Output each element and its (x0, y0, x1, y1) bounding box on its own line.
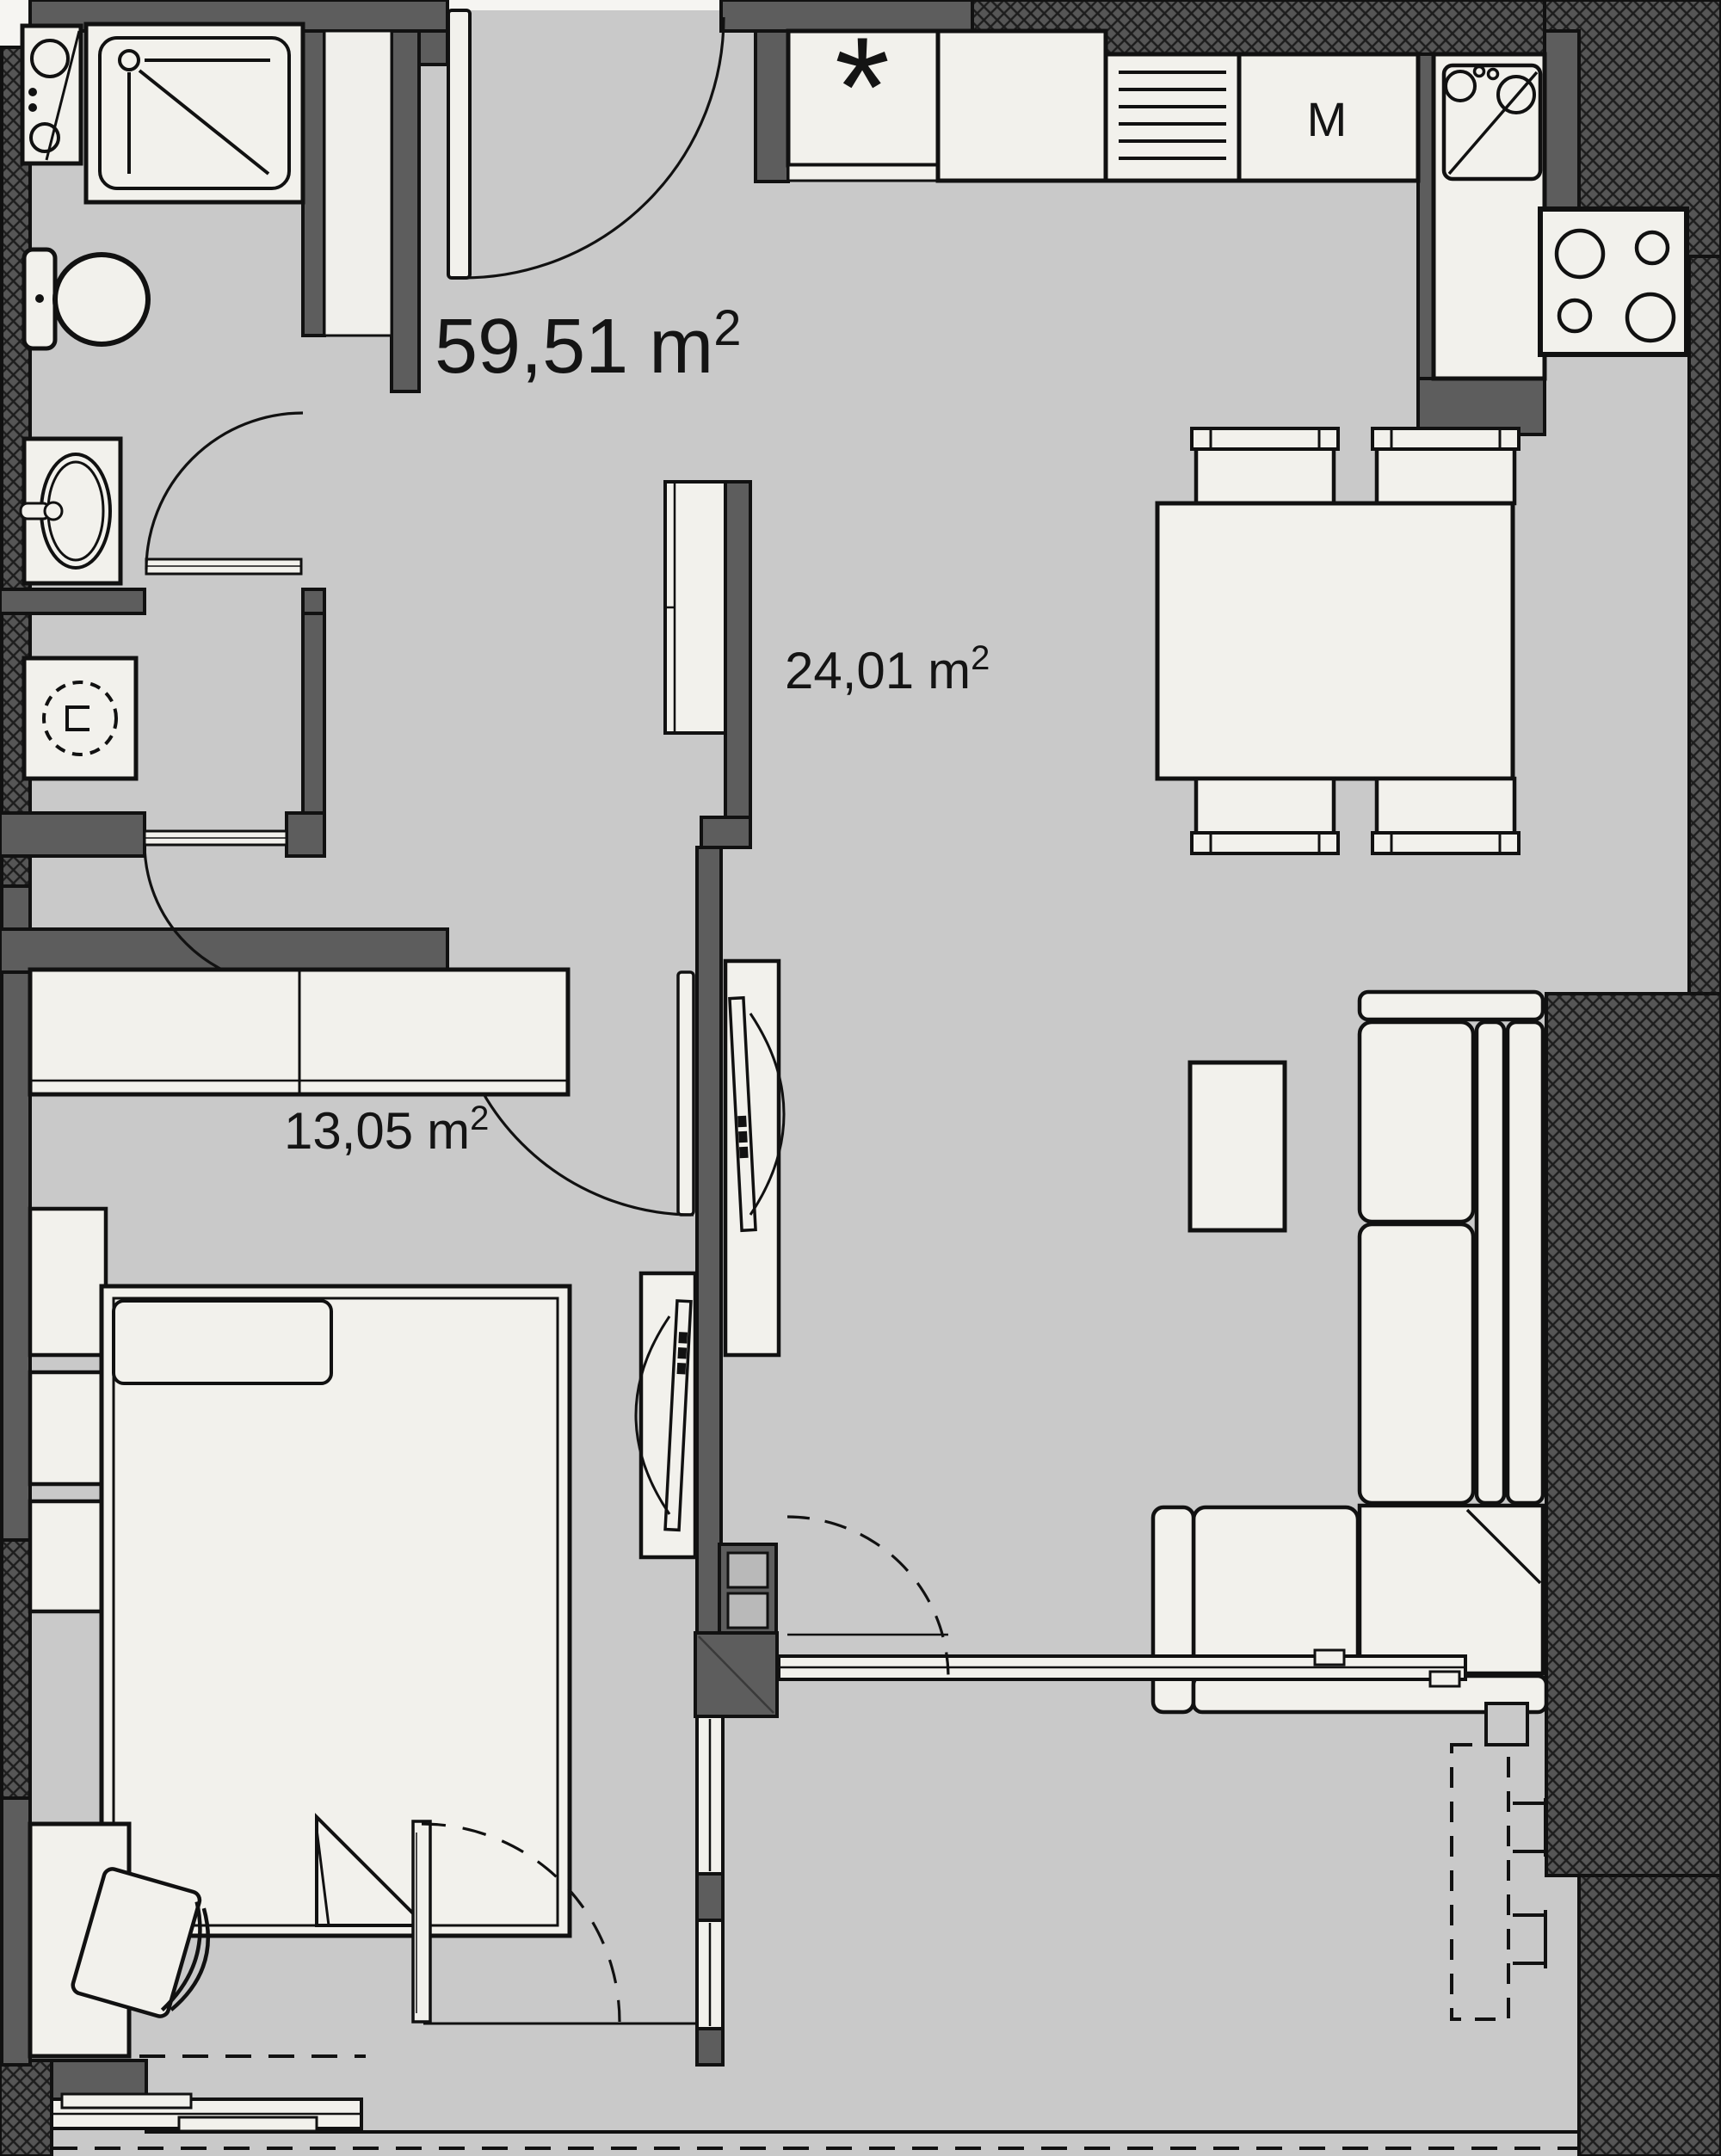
bed (102, 1286, 570, 1936)
hall-wardrobe (665, 482, 725, 733)
total-area-label: 59,51m2 (435, 300, 741, 390)
washing-machine (24, 658, 136, 779)
washbasin (21, 439, 120, 583)
bedroom-wardrobe (30, 970, 568, 1094)
wall (303, 613, 324, 813)
exterior-wall-hatched (1546, 994, 1721, 1876)
wall (697, 2026, 723, 2065)
wall (0, 929, 447, 972)
nightstand (30, 1209, 106, 1355)
balcony-sliding-door (779, 1650, 1465, 1686)
stove (1540, 209, 1687, 354)
bedroom-window (52, 2094, 361, 2131)
dishwasher-marker: M (1307, 92, 1348, 146)
kitchen-counter (938, 31, 1106, 181)
wall (1418, 54, 1434, 396)
wall (287, 813, 324, 856)
dining-chair (1372, 779, 1519, 853)
wall (697, 1874, 723, 1920)
exterior-wall-hatched (0, 2061, 52, 2156)
dining-chair (1192, 779, 1338, 853)
entry-door-leaf (448, 10, 470, 278)
shaft-cell (728, 1593, 768, 1628)
exterior-wall-hatched (2, 1540, 30, 1798)
shaft-cell (728, 1553, 768, 1587)
wall (2, 1798, 30, 2065)
wall (756, 31, 788, 182)
wall (2, 886, 30, 1540)
nightstand (30, 1501, 103, 1611)
wall (0, 813, 145, 856)
balcony-window (697, 1716, 723, 2029)
toilet (24, 249, 148, 348)
coffee-table (1190, 1063, 1285, 1230)
dining-chair (1372, 428, 1519, 503)
entry-threshold (447, 0, 723, 10)
floor-plan: * M (0, 0, 1721, 2156)
tv-unit-living (725, 961, 784, 1355)
wall (303, 31, 324, 336)
tv-unit-bedroom (636, 1273, 695, 1557)
wall (1545, 31, 1579, 209)
wall (697, 847, 721, 1633)
kitchen-sink (1434, 54, 1545, 379)
utility-sink (22, 26, 81, 163)
balcony-planter (1486, 1703, 1527, 1745)
bedroom-area-label: 13,05m2 (284, 1100, 489, 1160)
wall (303, 589, 324, 613)
fridge-marker: * (835, 8, 890, 166)
floor-plan-canvas: * M (0, 0, 1721, 2156)
wall (725, 482, 750, 822)
wall (1418, 379, 1545, 434)
nightstand (30, 1372, 103, 1484)
duct-sliver (324, 31, 392, 336)
total-area-value: 59,51 (435, 304, 628, 390)
wall (701, 817, 750, 847)
living-area-label: 24,01m2 (785, 639, 990, 699)
wall (0, 589, 145, 613)
dish-rack (1106, 54, 1239, 181)
dining-chair (1192, 428, 1338, 503)
wall (392, 31, 419, 391)
exterior-wall-hatched (1689, 256, 1721, 994)
dining-table (1157, 503, 1513, 779)
exterior-wall-hatched (1579, 1876, 1721, 2156)
shower-tray (86, 24, 303, 202)
